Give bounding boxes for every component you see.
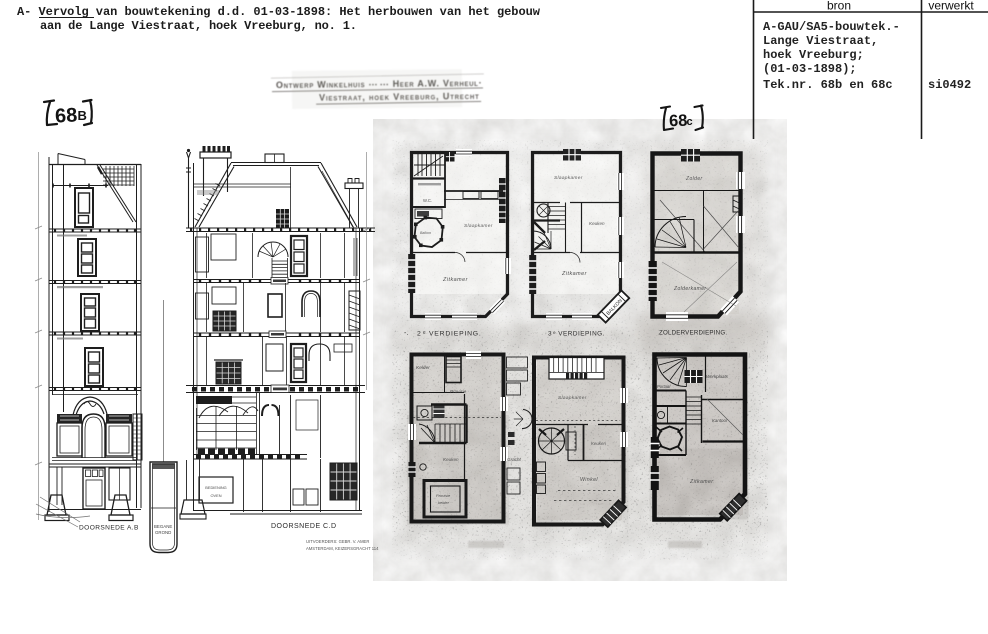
svg-text:68: 68 — [55, 104, 78, 127]
svg-text:Provisie: Provisie — [450, 389, 467, 394]
svg-text:DOORSNEDE C.D: DOORSNEDE C.D — [271, 523, 337, 530]
svg-text:Tek.nr. 68b en 68c: Tek.nr. 68b en 68c — [763, 78, 893, 92]
svg-text:2 ᵉ VERDIEPING.: 2 ᵉ VERDIEPING. — [417, 331, 482, 338]
svg-text:ZOLDERVERDIEPING.: ZOLDERVERDIEPING. — [659, 330, 727, 337]
svg-text:OVEN: OVEN — [210, 493, 221, 498]
svg-text:Gracht: Gracht — [507, 457, 522, 462]
svg-text:B: B — [78, 108, 87, 123]
svg-text:3 ᵉ VERDIEPING.: 3 ᵉ VERDIEPING. — [548, 331, 605, 338]
svg-text:Provisie: Provisie — [436, 493, 451, 498]
svg-text:Slaapkamer: Slaapkamer — [464, 223, 493, 229]
svg-text:DOORSNEDE A.B: DOORSNEDE A.B — [79, 525, 139, 532]
svg-text:AMSTERDAM, KEIZERSGRACHT 114: AMSTERDAM, KEIZERSGRACHT 114 — [306, 546, 379, 551]
svg-text:BEGANE: BEGANE — [154, 524, 172, 529]
svg-text:Balkon: Balkon — [420, 231, 431, 235]
svg-text:aan de Lange Viestraat, hoek V: aan de Lange Viestraat, hoek Vreeburg, n… — [40, 19, 357, 33]
svg-text:kelder: kelder — [438, 500, 450, 505]
svg-text:Kantoor: Kantoor — [712, 418, 728, 423]
svg-text:Zitkamer: Zitkamer — [442, 277, 468, 283]
svg-text:Zolder: Zolder — [685, 176, 703, 182]
svg-text:Keuken: Keuken — [591, 441, 606, 446]
svg-text:Slaapkamer: Slaapkamer — [554, 175, 583, 181]
svg-text:UITVOERDERS: GEBR. V. AMER: UITVOERDERS: GEBR. V. AMER — [306, 539, 369, 544]
svg-text:bron: bron — [827, 0, 851, 13]
svg-text:W.C.: W.C. — [423, 198, 432, 203]
svg-text:Zolderkamer: Zolderkamer — [673, 286, 706, 292]
svg-text:Kelder: Kelder — [416, 365, 430, 371]
svg-text:(01-03-1898);: (01-03-1898); — [763, 62, 857, 76]
svg-text:Winkel: Winkel — [580, 477, 598, 483]
svg-text:Werkplaats: Werkplaats — [706, 374, 729, 379]
svg-text:verwerkt: verwerkt — [928, 0, 974, 13]
svg-text:68: 68 — [669, 112, 688, 131]
svg-text:Zitkamer: Zitkamer — [561, 271, 587, 277]
svg-text:Zitkamer: Zitkamer — [689, 479, 713, 485]
svg-text:c: c — [687, 116, 693, 128]
svg-text:BEDIENING: BEDIENING — [205, 485, 226, 490]
svg-text:-.: -. — [404, 330, 408, 337]
svg-text:hoek Vreeburg;: hoek Vreeburg; — [763, 48, 864, 62]
svg-text:Lange Viestraat,: Lange Viestraat, — [763, 34, 878, 48]
svg-text:Slaapkamer: Slaapkamer — [558, 395, 587, 401]
svg-text:Portaal: Portaal — [657, 384, 671, 389]
svg-text:A- Vervolg van bouwtekening d.: A- Vervolg van bouwtekening d.d. 01-03-1… — [17, 5, 541, 19]
svg-text:Keuken: Keuken — [589, 221, 605, 226]
svg-text:Keuken: Keuken — [443, 457, 459, 462]
svg-text:GROND: GROND — [155, 530, 171, 535]
svg-text:A-GAU/SA5-bouwtek.-: A-GAU/SA5-bouwtek.- — [763, 20, 900, 34]
svg-text:si0492: si0492 — [928, 78, 971, 92]
